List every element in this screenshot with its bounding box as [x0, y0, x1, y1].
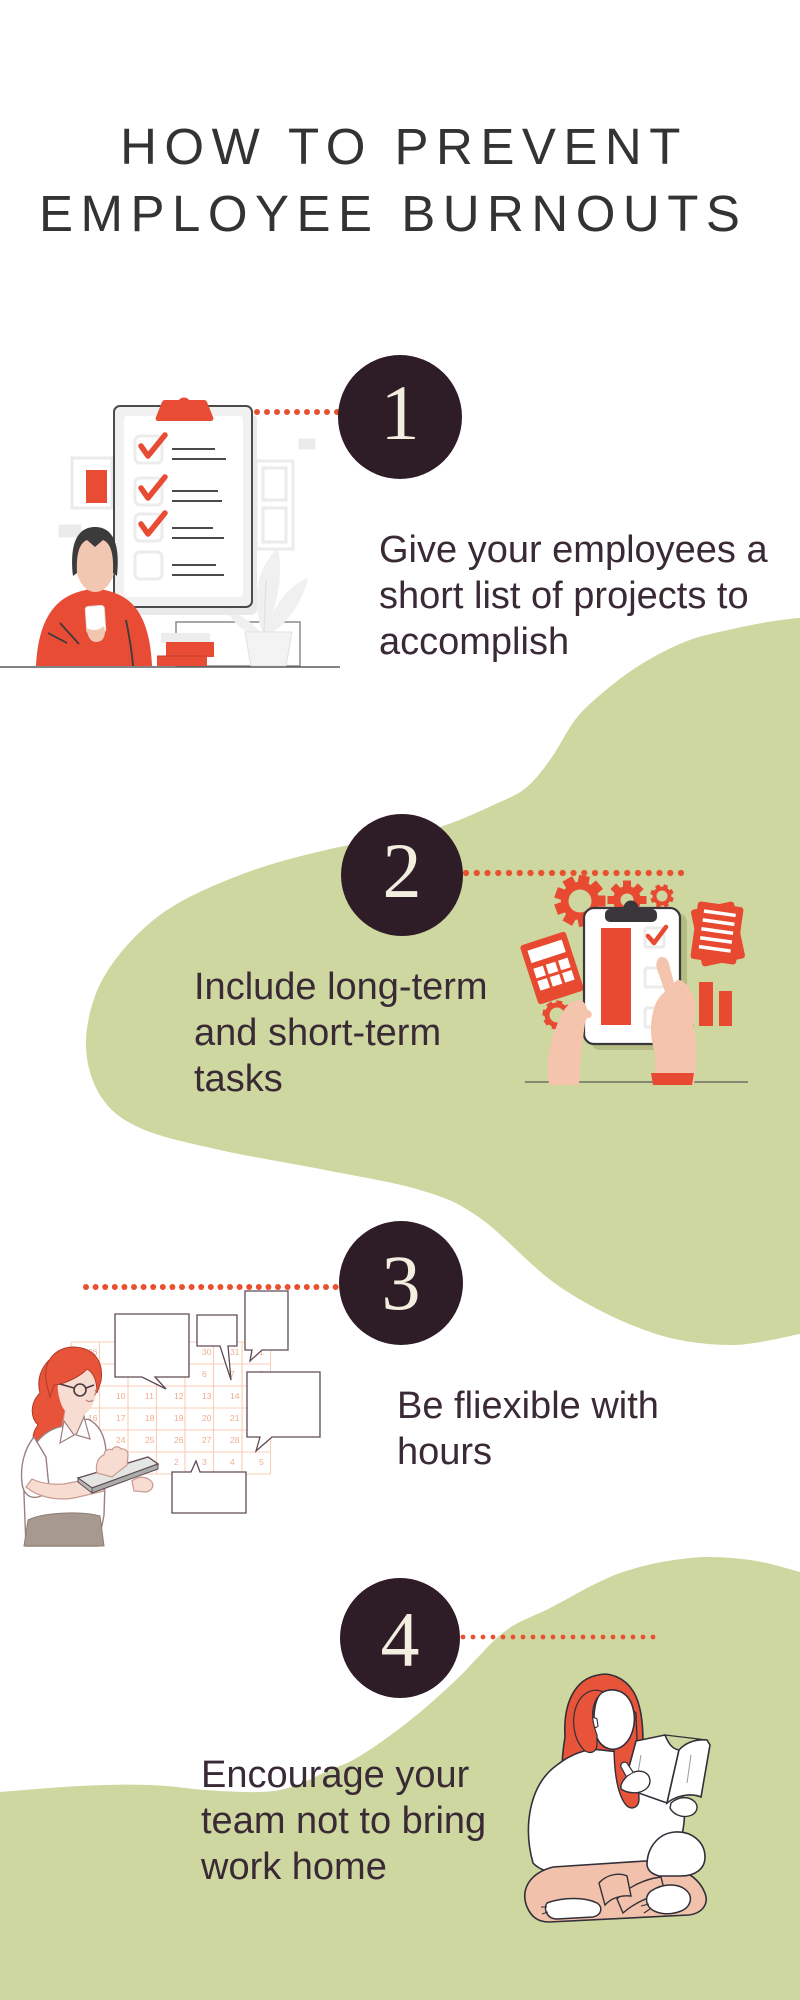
svg-text:12: 12 — [174, 1391, 184, 1401]
svg-text:28: 28 — [230, 1435, 240, 1445]
svg-text:27: 27 — [202, 1435, 212, 1445]
svg-text:31: 31 — [230, 1347, 240, 1357]
svg-text:2: 2 — [174, 1457, 179, 1467]
svg-text:18: 18 — [145, 1413, 155, 1423]
svg-text:25: 25 — [145, 1435, 155, 1445]
svg-text:30: 30 — [202, 1347, 212, 1357]
svg-text:4: 4 — [230, 1457, 235, 1467]
svg-text:19: 19 — [174, 1413, 184, 1423]
svg-text:6: 6 — [202, 1369, 207, 1379]
svg-text:14: 14 — [230, 1391, 240, 1401]
svg-text:11: 11 — [145, 1391, 154, 1401]
svg-text:17: 17 — [116, 1413, 126, 1423]
svg-text:20: 20 — [202, 1413, 212, 1423]
svg-text:13: 13 — [202, 1391, 212, 1401]
svg-text:5: 5 — [259, 1457, 264, 1467]
svg-text:21: 21 — [230, 1413, 240, 1423]
svg-text:10: 10 — [116, 1391, 126, 1401]
svg-text:26: 26 — [174, 1435, 184, 1445]
svg-text:3: 3 — [202, 1457, 207, 1467]
svg-text:24: 24 — [116, 1435, 126, 1445]
